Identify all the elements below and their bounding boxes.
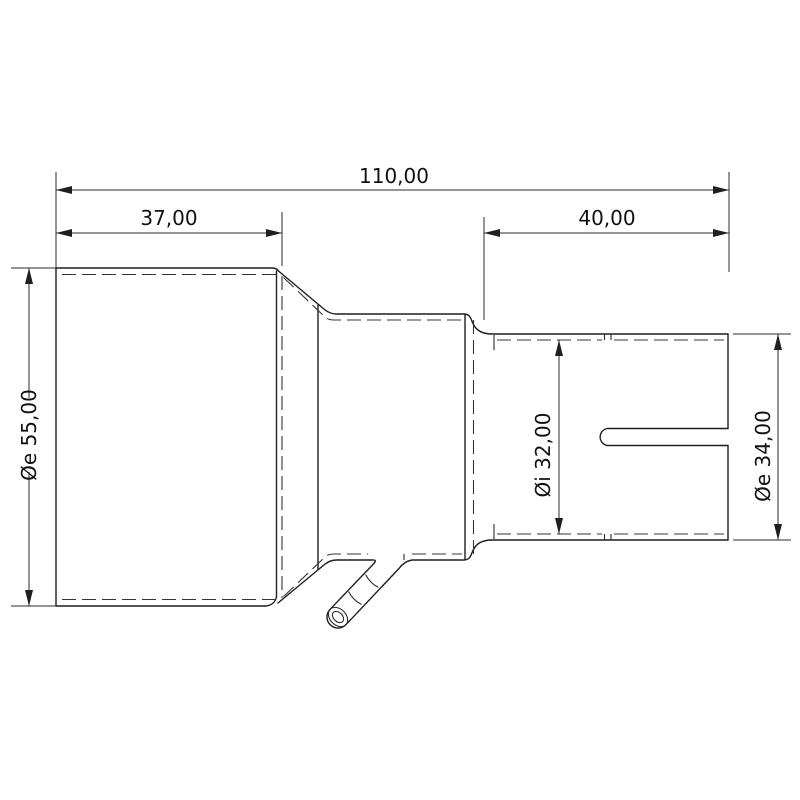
upper-profile <box>279 271 729 334</box>
label-inlet-length: 37,00 <box>140 206 197 230</box>
dimension-arrows <box>25 186 782 606</box>
lower-profile-and-tube <box>278 540 728 628</box>
dimension-labels: 110,00 37,00 40,00 Øe 55,00 Øi 32,00 Øe … <box>17 164 775 502</box>
arrow-inlet-left <box>56 229 72 237</box>
hidden-lines <box>62 275 724 600</box>
technical-drawing-canvas: 110,00 37,00 40,00 Øe 55,00 Øi 32,00 Øe … <box>0 0 800 800</box>
tube-opening-ellipse <box>325 604 352 631</box>
tube-section-ticks <box>349 575 379 605</box>
arrow-inlet-right <box>266 229 282 237</box>
arrow-d34-top <box>774 334 782 350</box>
slot-hidden-end-ticks <box>605 334 612 540</box>
arrow-d55-bottom <box>25 590 33 606</box>
arrow-d32-bottom <box>555 518 563 534</box>
arrow-outlet-right <box>713 229 729 237</box>
dimension-lines <box>11 172 791 606</box>
arrow-d55-top <box>25 268 33 284</box>
expansion-slot <box>600 429 728 446</box>
label-total-length: 110,00 <box>359 164 429 188</box>
drawing-sheet: 110,00 37,00 40,00 Øe 55,00 Øi 32,00 Øe … <box>0 0 800 800</box>
label-inlet-outer-diameter: Øe 55,00 <box>17 389 41 481</box>
arrow-outlet-left <box>484 229 500 237</box>
arrow-d34-bottom <box>774 524 782 540</box>
ext-lines <box>11 172 791 606</box>
arrow-total-right <box>713 186 729 194</box>
inlet-pipe-outline <box>56 268 279 606</box>
label-outlet-inner-diameter: Øi 32,00 <box>531 413 555 498</box>
arrow-total-left <box>56 186 72 194</box>
label-outlet-length: 40,00 <box>578 206 635 230</box>
arrow-d32-top <box>555 340 563 356</box>
part-outline <box>56 268 728 630</box>
label-outlet-outer-diameter: Øe 34,00 <box>751 410 775 502</box>
